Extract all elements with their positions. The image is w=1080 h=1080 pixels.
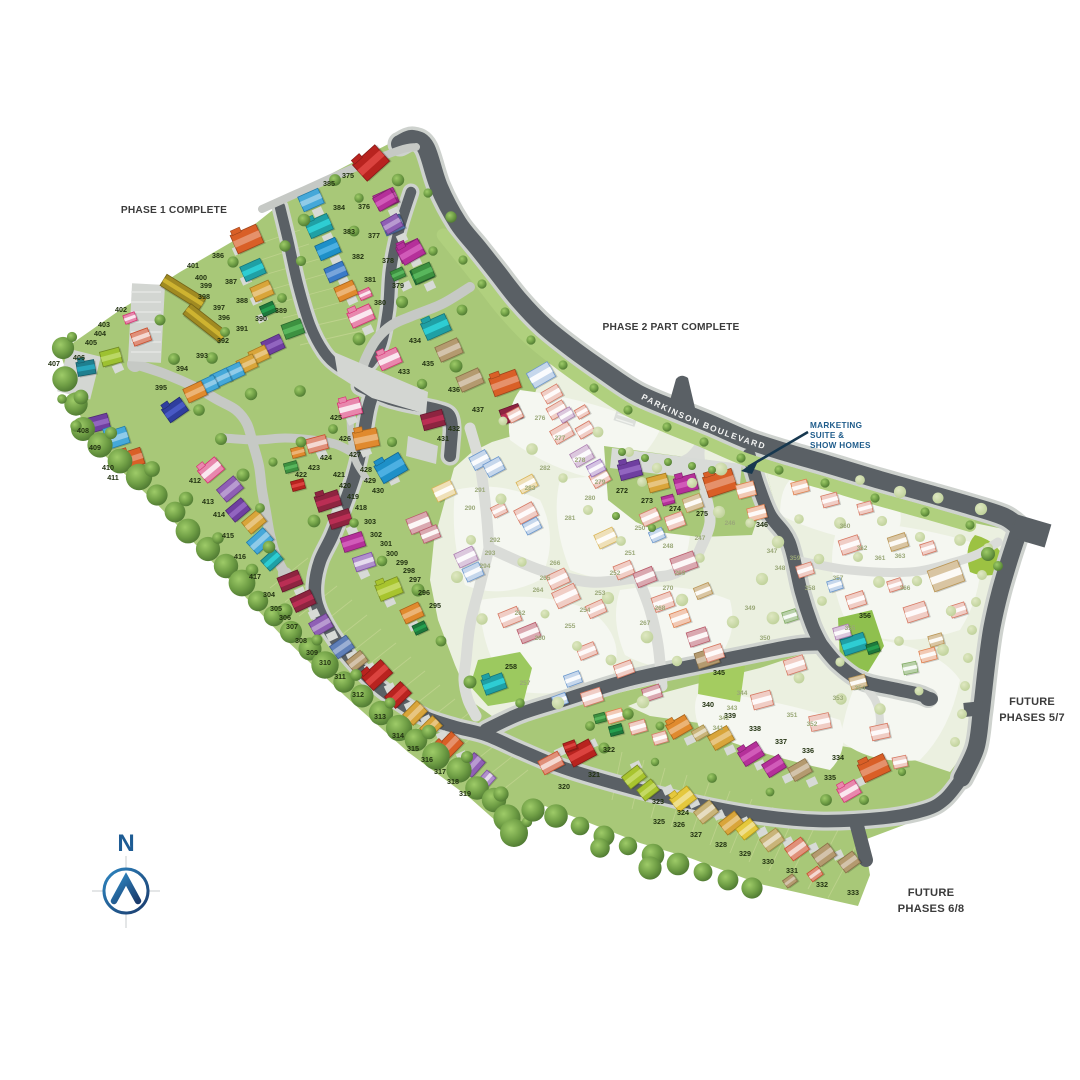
svg-text:399: 399 [200, 281, 212, 290]
svg-text:252: 252 [610, 570, 621, 577]
svg-text:329: 329 [739, 849, 751, 858]
svg-text:247: 247 [695, 535, 706, 542]
svg-text:341: 341 [713, 725, 724, 732]
svg-text:390: 390 [255, 314, 267, 323]
svg-text:397: 397 [213, 303, 225, 312]
svg-text:340: 340 [702, 700, 714, 709]
svg-text:330: 330 [762, 857, 774, 866]
svg-text:337: 337 [775, 737, 787, 746]
svg-text:378: 378 [382, 256, 394, 265]
svg-text:327: 327 [690, 830, 702, 839]
svg-text:362: 362 [857, 545, 868, 552]
svg-text:385: 385 [323, 179, 335, 188]
svg-text:404: 404 [94, 329, 106, 338]
svg-text:338: 338 [749, 724, 761, 733]
svg-text:412: 412 [189, 476, 201, 485]
svg-text:299: 299 [396, 558, 408, 567]
svg-text:407: 407 [48, 359, 60, 368]
svg-text:303: 303 [364, 517, 376, 526]
svg-text:357: 357 [833, 575, 844, 582]
svg-text:325: 325 [653, 817, 665, 826]
svg-text:301: 301 [380, 539, 392, 548]
svg-text:393: 393 [196, 351, 208, 360]
svg-text:406: 406 [73, 353, 85, 362]
svg-text:411: 411 [107, 473, 119, 482]
svg-text:380: 380 [374, 298, 386, 307]
svg-text:270: 270 [663, 585, 674, 592]
svg-text:396: 396 [218, 313, 230, 322]
svg-text:346: 346 [756, 520, 768, 529]
svg-text:MARKETING: MARKETING [810, 421, 862, 430]
svg-text:309: 309 [306, 648, 318, 657]
svg-text:410: 410 [102, 463, 114, 472]
svg-text:432: 432 [448, 424, 460, 433]
svg-text:420: 420 [339, 481, 351, 490]
svg-text:296: 296 [418, 588, 430, 597]
svg-text:332: 332 [816, 880, 828, 889]
svg-text:416: 416 [234, 552, 246, 561]
svg-text:SUITE &: SUITE & [810, 431, 844, 440]
svg-text:334: 334 [832, 753, 844, 762]
svg-text:405: 405 [85, 338, 97, 347]
svg-text:307: 307 [286, 622, 298, 631]
svg-text:312: 312 [352, 690, 364, 699]
svg-text:363: 363 [895, 553, 906, 560]
svg-text:383: 383 [343, 227, 355, 236]
svg-text:429: 429 [364, 476, 376, 485]
svg-text:424: 424 [320, 453, 332, 462]
svg-text:264: 264 [533, 587, 544, 594]
svg-text:310: 310 [319, 658, 331, 667]
svg-text:290: 290 [465, 505, 476, 512]
svg-text:425: 425 [330, 413, 342, 422]
svg-text:FUTURE: FUTURE [908, 887, 955, 899]
svg-text:413: 413 [202, 497, 214, 506]
svg-text:415: 415 [222, 531, 234, 540]
svg-text:336: 336 [802, 746, 814, 755]
svg-text:348: 348 [775, 565, 786, 572]
svg-text:324: 324 [677, 808, 689, 817]
svg-text:N: N [117, 830, 134, 857]
svg-text:266: 266 [550, 560, 561, 567]
svg-text:389: 389 [275, 306, 287, 315]
svg-text:316: 316 [421, 755, 433, 764]
svg-text:297: 297 [409, 575, 421, 584]
svg-text:426: 426 [339, 434, 351, 443]
svg-text:388: 388 [236, 296, 248, 305]
svg-text:282: 282 [540, 465, 551, 472]
svg-text:260: 260 [535, 635, 546, 642]
svg-text:314: 314 [392, 731, 404, 740]
svg-text:281: 281 [565, 515, 576, 522]
svg-text:280: 280 [585, 495, 596, 502]
svg-text:328: 328 [715, 840, 727, 849]
svg-text:430: 430 [372, 486, 384, 495]
svg-text:313: 313 [374, 712, 386, 721]
svg-text:250: 250 [635, 525, 646, 532]
svg-text:319: 319 [459, 789, 471, 798]
svg-text:435: 435 [422, 359, 434, 368]
svg-text:292: 292 [490, 537, 501, 544]
svg-text:277: 277 [555, 435, 566, 442]
svg-text:423: 423 [308, 463, 320, 472]
svg-text:317: 317 [434, 767, 446, 776]
svg-text:268: 268 [655, 605, 666, 612]
svg-text:382: 382 [352, 252, 364, 261]
svg-text:409: 409 [89, 443, 101, 452]
svg-text:254: 254 [580, 607, 591, 614]
svg-text:359: 359 [790, 555, 801, 562]
svg-text:294: 294 [480, 563, 491, 570]
svg-text:253: 253 [595, 590, 606, 597]
svg-text:333: 333 [847, 888, 859, 897]
svg-text:257: 257 [520, 680, 531, 687]
svg-text:361: 361 [875, 555, 886, 562]
svg-text:379: 379 [392, 281, 404, 290]
svg-text:272: 272 [616, 486, 628, 495]
svg-text:422: 422 [295, 470, 307, 479]
svg-text:305: 305 [270, 604, 282, 613]
svg-text:394: 394 [176, 364, 188, 373]
svg-text:384: 384 [333, 203, 345, 212]
svg-text:308: 308 [295, 636, 307, 645]
svg-text:351: 351 [787, 712, 798, 719]
svg-text:434: 434 [409, 336, 421, 345]
svg-text:318: 318 [447, 777, 459, 786]
svg-text:291: 291 [475, 487, 486, 494]
svg-text:246: 246 [725, 520, 736, 527]
svg-text:323: 323 [652, 797, 664, 806]
svg-text:398: 398 [198, 292, 210, 301]
svg-text:355: 355 [845, 625, 856, 632]
svg-text:391: 391 [236, 324, 248, 333]
svg-text:427: 427 [349, 450, 361, 459]
svg-text:315: 315 [407, 744, 419, 753]
svg-text:273: 273 [641, 496, 653, 505]
svg-text:306: 306 [279, 613, 291, 622]
svg-text:293: 293 [485, 550, 496, 557]
svg-text:331: 331 [786, 866, 798, 875]
svg-text:358: 358 [805, 585, 816, 592]
svg-text:295: 295 [429, 601, 441, 610]
svg-text:395: 395 [155, 383, 167, 392]
svg-text:274: 274 [669, 504, 681, 513]
svg-text:377: 377 [368, 231, 380, 240]
svg-text:344: 344 [737, 690, 748, 697]
svg-text:267: 267 [640, 620, 651, 627]
svg-text:421: 421 [333, 470, 345, 479]
svg-text:354: 354 [855, 685, 866, 692]
svg-text:392: 392 [217, 336, 229, 345]
svg-text:436: 436 [448, 385, 460, 394]
svg-text:PHASES 6/8: PHASES 6/8 [898, 903, 965, 915]
svg-text:311: 311 [334, 672, 346, 681]
svg-text:433: 433 [398, 367, 410, 376]
svg-text:386: 386 [212, 251, 224, 260]
svg-text:302: 302 [370, 530, 382, 539]
svg-text:PHASES 5/7: PHASES 5/7 [999, 712, 1065, 724]
svg-text:322: 322 [603, 745, 615, 754]
svg-text:335: 335 [824, 773, 836, 782]
svg-text:283: 283 [525, 485, 536, 492]
svg-text:437: 437 [472, 405, 484, 414]
svg-text:428: 428 [360, 465, 372, 474]
svg-text:262: 262 [515, 610, 526, 617]
svg-text:360: 360 [840, 523, 851, 530]
svg-text:343: 343 [727, 705, 738, 712]
svg-text:276: 276 [535, 415, 546, 422]
svg-text:265: 265 [540, 575, 551, 582]
svg-text:376: 376 [358, 202, 370, 211]
svg-text:258: 258 [505, 662, 517, 671]
svg-text:349: 349 [745, 605, 756, 612]
svg-text:320: 320 [558, 782, 570, 791]
svg-text:402: 402 [115, 305, 127, 314]
svg-text:304: 304 [263, 590, 275, 599]
svg-text:269: 269 [675, 570, 686, 577]
svg-text:353: 353 [833, 695, 844, 702]
svg-text:431: 431 [437, 434, 449, 443]
svg-text:342: 342 [719, 715, 730, 722]
svg-text:248: 248 [663, 543, 674, 550]
svg-text:356: 356 [859, 611, 871, 620]
svg-text:PHASE 2 PART COMPLETE: PHASE 2 PART COMPLETE [602, 322, 739, 333]
svg-text:403: 403 [98, 320, 110, 329]
svg-text:SHOW HOMES: SHOW HOMES [810, 441, 871, 450]
svg-text:298: 298 [403, 566, 415, 575]
svg-text:300: 300 [386, 549, 398, 558]
svg-text:401: 401 [187, 261, 199, 270]
svg-text:387: 387 [225, 277, 237, 286]
svg-text:321: 321 [588, 770, 600, 779]
svg-text:366: 366 [900, 585, 911, 592]
svg-text:375: 375 [342, 171, 354, 180]
svg-text:408: 408 [77, 426, 89, 435]
svg-text:381: 381 [364, 275, 376, 284]
svg-text:PHASE 1 COMPLETE: PHASE 1 COMPLETE [121, 205, 227, 216]
svg-text:350: 350 [760, 635, 771, 642]
svg-text:326: 326 [673, 820, 685, 829]
svg-text:275: 275 [696, 509, 708, 518]
svg-text:279: 279 [595, 479, 606, 486]
svg-text:417: 417 [249, 572, 261, 581]
svg-text:278: 278 [575, 457, 586, 464]
svg-text:251: 251 [625, 550, 636, 557]
svg-text:419: 419 [347, 492, 359, 501]
svg-text:414: 414 [213, 510, 225, 519]
svg-text:418: 418 [355, 503, 367, 512]
svg-text:345: 345 [713, 668, 725, 677]
svg-text:347: 347 [767, 548, 778, 555]
svg-text:352: 352 [807, 721, 818, 728]
svg-text:255: 255 [565, 623, 576, 630]
svg-text:FUTURE: FUTURE [1009, 696, 1055, 708]
